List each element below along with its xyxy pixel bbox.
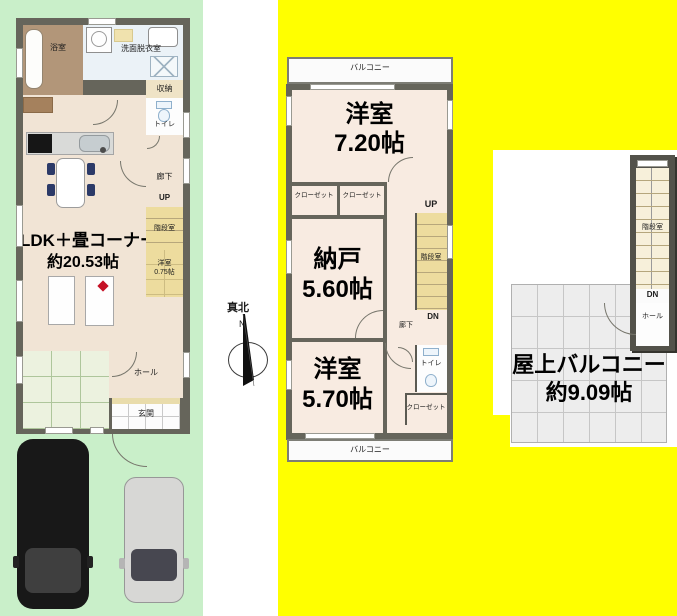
tatami-corner-floor [23,351,109,429]
window [45,427,73,434]
balcony-top-label: バルコニー [287,64,453,72]
window [183,352,190,378]
stairwell1f-label: 階段室 [146,225,183,232]
window [16,48,23,78]
small-room-size: 0.75帖 [146,269,183,276]
window [16,280,23,322]
sliding-door [310,84,395,90]
storage-room-size: 5.60帖 [292,277,383,302]
bath-mat [114,29,133,42]
black-car-mirror [13,556,19,568]
roof-balcony-name: 屋上バルコニー [505,353,673,376]
ldk-room-name: LDK＋畳コーナー [20,232,146,250]
dining-table [56,158,85,208]
kitchen-faucet-icon [100,147,106,153]
window [286,360,292,390]
closet-bottom-label: クローゼット [402,405,450,412]
toilet2f-label: トイレ [415,360,447,367]
roof-yellow-notch [493,415,510,447]
corridor2f-label: 廊下 [399,322,413,329]
window [90,427,104,434]
window [286,96,292,126]
dining-chair [87,163,95,175]
small-room-name: 洋室 [146,260,183,267]
toilet1f-label: トイレ [146,121,183,128]
corridor1f-label: 廊下 [146,173,183,181]
floorplan-image: 浴室 洗面脱衣室 収納 トイレ LDK＋畳コーナー 約20.53帖 廊下 UP … [0,0,677,616]
shower-tray-icon [150,56,178,77]
window [183,158,190,184]
silver-car-mirror [183,558,189,569]
sofa [48,276,75,325]
window [447,100,453,130]
dn2f-label: DN [418,313,448,321]
washroom-label: 洗面脱衣室 [108,45,174,53]
toilet2f-bowl-icon [425,374,437,387]
cooktop-icon [28,134,52,153]
ldk-room-size: 約20.53帖 [20,255,146,272]
storage-label: 収納 [146,85,183,93]
bath-label: 浴室 [40,44,76,52]
room1-name: 洋室 [292,102,447,127]
up2f-label: UP [415,200,447,209]
silver-car-windshield [131,549,177,581]
up1f-label: UP [146,194,183,202]
compass-title: 真北 [227,303,249,315]
stairs2f [415,213,447,310]
closet-right [340,186,384,215]
dining-chair [47,163,55,175]
silver-car [124,477,184,603]
toilet2f-tank-icon [423,348,439,356]
closet-right-label: クローゼット [337,193,387,200]
room1-size: 7.20帖 [292,131,447,156]
entrance-label: 玄関 [126,410,166,418]
storage-room-name: 納戸 [292,247,383,272]
roof-hall-floor [636,303,669,346]
roof-hall-label: ホール [636,313,669,320]
window [16,356,23,384]
toilet1f-tank-icon [156,101,172,109]
roof-stairwell-label: 階段室 [636,224,669,231]
closet-left-label: クローゼット [289,193,339,200]
window [637,160,668,167]
corridor1f-lower-floor [146,297,183,351]
dining-chair [47,184,55,196]
room2-name: 洋室 [292,357,383,382]
black-car-windshield [25,548,81,593]
dining-chair [87,184,95,196]
room2-size: 5.70帖 [292,387,383,412]
kitchen-cabinet [23,97,53,113]
washing-machine-drum [91,31,107,47]
silver-car-mirror [119,558,125,569]
closet-left [292,186,337,215]
window [16,205,23,247]
roof-dn-label: DN [636,291,669,299]
window [183,112,190,138]
balcony-bottom-label: バルコニー [287,446,453,454]
north-compass-icon [233,314,261,390]
black-car-mirror [87,556,93,568]
stairwell2f-label: 階段室 [415,254,447,261]
window [447,225,453,259]
window [88,18,116,25]
bathtub [25,29,43,89]
window [286,240,292,274]
roof-balcony-size: 約9.09帖 [505,381,673,404]
